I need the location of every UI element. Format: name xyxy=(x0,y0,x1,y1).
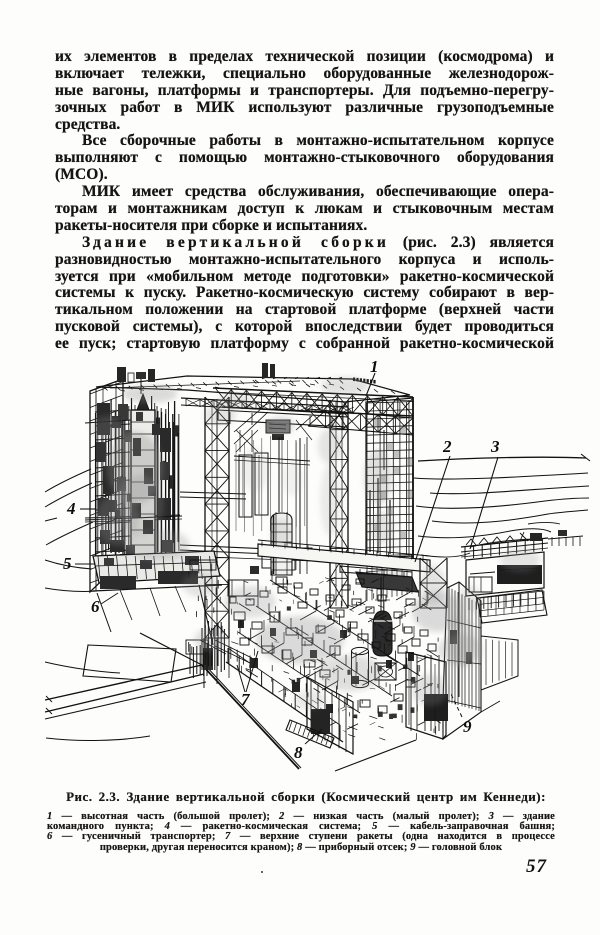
svg-text:1: 1 xyxy=(370,360,379,376)
svg-text:2: 2 xyxy=(442,437,452,456)
svg-text:3: 3 xyxy=(490,437,500,456)
svg-text:4: 4 xyxy=(66,499,76,518)
svg-text:8: 8 xyxy=(294,743,303,762)
svg-text:9: 9 xyxy=(463,717,472,736)
svg-text:7: 7 xyxy=(241,690,251,709)
svg-text:5: 5 xyxy=(63,554,72,573)
svg-text:6: 6 xyxy=(91,597,100,616)
